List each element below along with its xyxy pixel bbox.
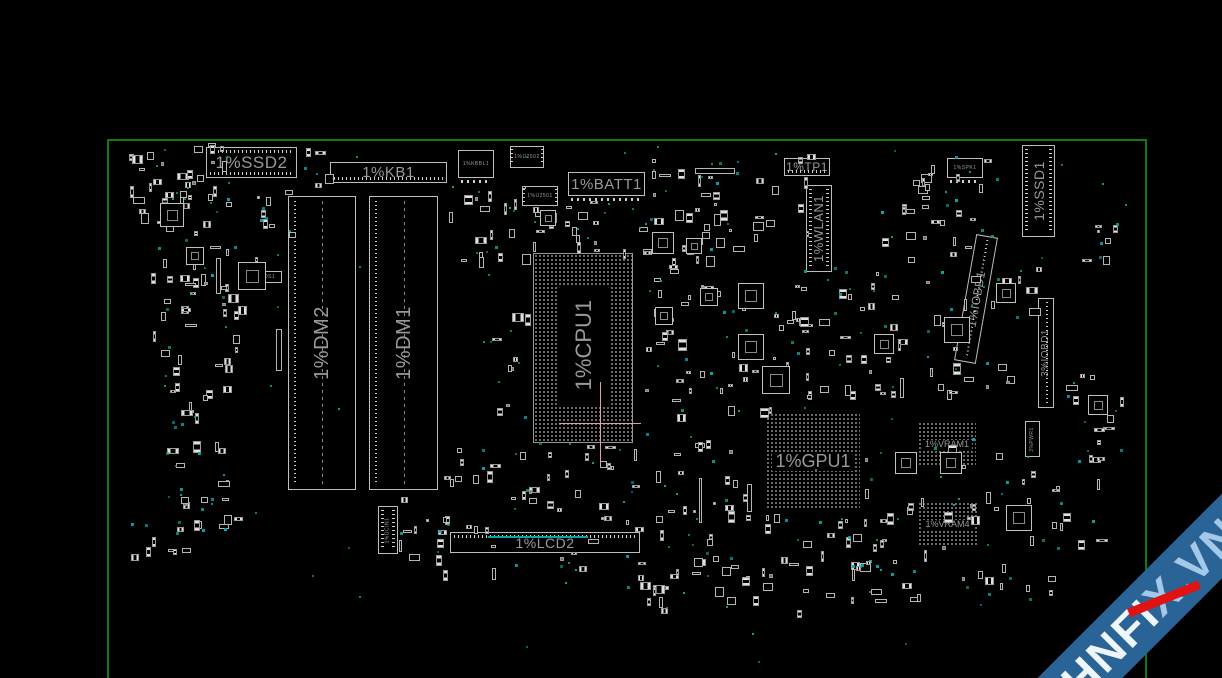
smd-part (1031, 471, 1036, 478)
component-label: 1%SPK1 (953, 166, 976, 171)
smd-part (520, 452, 526, 460)
via-dot (645, 223, 647, 225)
via-dot (204, 267, 206, 269)
via-dot (692, 544, 694, 546)
smd-part (871, 283, 875, 290)
ic-center-pad (658, 238, 668, 248)
via-dot (131, 523, 134, 526)
smd-part (1052, 522, 1057, 529)
via-dot (892, 386, 894, 388)
smd-part (257, 196, 260, 199)
via-dot (201, 508, 204, 511)
smd-part (773, 357, 776, 360)
smd-part (700, 371, 705, 378)
smd-part (829, 350, 835, 356)
via-dot (712, 460, 715, 463)
smd-part (906, 232, 916, 240)
smd-part (797, 610, 802, 618)
smd-part (161, 162, 164, 166)
smd-part (733, 246, 745, 252)
smd-part (147, 152, 154, 160)
via-dot (565, 582, 567, 584)
component-vram4[interactable]: 1%VRAM4 (918, 502, 977, 547)
via-dot (927, 330, 930, 333)
via-dot (657, 365, 659, 367)
via-dot (848, 536, 851, 539)
smd-part (713, 502, 716, 505)
smd-part (656, 342, 665, 345)
via-dot (701, 176, 703, 178)
smd-part (893, 560, 897, 564)
via-dot (668, 546, 670, 548)
smd-part (557, 508, 562, 512)
smd-part (676, 569, 679, 576)
via-dot (710, 372, 713, 375)
smd-part (774, 314, 779, 318)
smd-part (964, 299, 967, 311)
smd-part (1048, 576, 1056, 582)
ic-chip (1006, 505, 1032, 531)
via-dot (716, 387, 718, 389)
smd-part (401, 497, 408, 503)
smd-part (970, 218, 976, 221)
via-dot (168, 346, 171, 349)
smd-part (986, 385, 989, 389)
smd-part (662, 332, 668, 341)
pin-row (541, 149, 544, 165)
smd-part (746, 515, 751, 521)
smd-part (779, 325, 784, 331)
smd-part (868, 303, 875, 310)
smd-part (807, 395, 812, 399)
smd-part (1097, 230, 1100, 233)
smd-part (638, 562, 646, 565)
via-dot (518, 362, 520, 364)
smd-part (845, 519, 848, 523)
via-dot (165, 375, 167, 377)
via-dot (884, 325, 887, 328)
via-dot (619, 449, 621, 451)
smd-part (875, 384, 881, 391)
smd-part (802, 330, 809, 333)
smd-part (795, 285, 800, 288)
smd-part (201, 497, 208, 503)
pin-row (461, 180, 491, 183)
via-dot (1020, 270, 1022, 272)
ic-center-pad (1094, 401, 1103, 410)
via-dot (815, 469, 817, 471)
smd-part (220, 146, 224, 152)
smd-part (178, 355, 182, 365)
via-dot (560, 565, 563, 568)
smd-part (548, 452, 552, 458)
smd-part (1096, 539, 1108, 542)
smd-part (175, 383, 180, 392)
via-dot (483, 341, 485, 343)
smd-part (765, 524, 771, 534)
smd-part (605, 446, 616, 449)
via-dot (745, 329, 748, 332)
smd-part (225, 365, 233, 373)
smd-part (803, 541, 812, 548)
via-dot (478, 191, 480, 193)
smd-part (464, 195, 473, 205)
smd-part (533, 242, 536, 252)
smd-part (466, 525, 472, 529)
smd-part (487, 471, 493, 483)
smd-part (173, 367, 180, 376)
smd-part (161, 312, 166, 321)
via-dot (156, 165, 158, 167)
via-dot (710, 248, 713, 251)
smd-part (725, 505, 734, 511)
smd-part (638, 575, 644, 581)
component-u2501[interactable]: 1%U2501 (522, 186, 558, 206)
smd-part (443, 570, 448, 581)
via-dot (526, 156, 528, 158)
smd-part (880, 540, 884, 548)
via-dot (834, 312, 837, 315)
via-dot (210, 202, 212, 204)
via-dot (861, 564, 864, 567)
pin-row (555, 189, 558, 203)
smd-part (181, 497, 189, 504)
via-dot (758, 661, 760, 663)
smd-part (688, 295, 691, 300)
smd-part (1036, 267, 1042, 272)
smd-part (506, 404, 510, 407)
smd-part (235, 347, 238, 353)
via-dot (270, 385, 272, 387)
smd-part (522, 186, 526, 189)
via-dot (187, 187, 189, 189)
via-dot (723, 311, 726, 314)
via-dot (981, 229, 984, 232)
smd-part (725, 476, 730, 485)
via-dot (988, 593, 991, 596)
smd-part (729, 229, 732, 232)
via-dot (1116, 223, 1119, 226)
via-dot (234, 246, 237, 249)
smd-part (654, 218, 664, 225)
smd-part (1097, 440, 1101, 445)
component-batt1[interactable]: 1%BATT1 (568, 172, 645, 196)
component-tp1[interactable]: 1%TP1 (784, 158, 830, 176)
via-dot (696, 518, 698, 520)
smd-part (944, 512, 953, 523)
via-dot (539, 442, 542, 445)
smd-part (769, 407, 772, 414)
smd-part (1080, 374, 1085, 378)
via-dot (1006, 481, 1009, 484)
ic-chip (762, 366, 790, 394)
via-dot (498, 381, 500, 383)
via-dot (752, 633, 754, 635)
via-dot (639, 227, 641, 229)
smd-part (263, 219, 268, 229)
smd-part (632, 485, 640, 488)
smd-part (222, 303, 226, 306)
ic-center-pad (691, 243, 698, 250)
via-dot (819, 521, 822, 524)
smd-part (869, 370, 872, 374)
smd-part (864, 519, 867, 527)
smd-part (970, 504, 973, 508)
smd-part (436, 555, 442, 566)
smd-part (222, 498, 229, 501)
smd-part (474, 526, 478, 534)
smd-part (978, 571, 983, 579)
ic-chip (700, 288, 718, 306)
via-dot (681, 409, 684, 412)
smd-part (153, 331, 156, 342)
ic-chip (186, 247, 204, 265)
component-gpu1[interactable]: 1%GPU1 (766, 413, 860, 510)
smd-part (713, 556, 719, 562)
smd-part (176, 463, 185, 468)
via-dot (927, 356, 929, 358)
smd-part (696, 256, 699, 264)
smd-part (706, 256, 715, 267)
smd-part (593, 221, 599, 225)
pin-row (522, 189, 525, 203)
smd-part (1060, 523, 1063, 531)
via-dot (726, 606, 728, 608)
via-dot (894, 150, 896, 152)
smd-part (753, 222, 764, 231)
smd-part (819, 319, 830, 326)
smd-part (188, 195, 192, 200)
via-dot (996, 178, 999, 181)
via-dot (1001, 493, 1003, 495)
smd-part (728, 384, 733, 387)
via-dot (980, 604, 982, 606)
smd-part (223, 386, 232, 393)
smd-part (634, 449, 637, 461)
smd-part (578, 212, 588, 220)
via-dot (1041, 257, 1043, 259)
component-kb1[interactable]: 1%KB1 (330, 162, 447, 183)
ic-center-pad (951, 324, 963, 336)
smd-part (806, 373, 809, 381)
smd-part (399, 540, 402, 552)
via-dot (891, 573, 894, 576)
smd-part (210, 145, 215, 154)
via-dot (873, 290, 875, 292)
smd-part (806, 348, 810, 355)
smd-part (646, 347, 652, 352)
smd-part (994, 507, 999, 511)
via-dot (515, 453, 517, 455)
pin-row (1025, 149, 1028, 233)
smd-part (908, 257, 915, 263)
smd-part (306, 148, 311, 157)
smd-part (269, 224, 275, 228)
via-dot (225, 326, 227, 328)
ic-chip (686, 238, 702, 254)
via-dot (356, 156, 358, 158)
component-spk1[interactable]: 1%SPK1 (947, 158, 983, 178)
smd-part (866, 561, 871, 565)
pin-row (1049, 149, 1052, 233)
smd-part (1097, 457, 1105, 461)
smd-part (848, 294, 852, 300)
smd-part (971, 276, 981, 283)
smd-part (590, 201, 598, 204)
component-label: 1%DCIN1 (386, 517, 391, 543)
via-dot (180, 494, 182, 496)
via-dot (338, 408, 340, 410)
smd-part (508, 365, 512, 372)
via-dot (1016, 316, 1019, 319)
via-dot (736, 172, 739, 175)
via-dot (194, 416, 196, 418)
smd-part (192, 181, 196, 185)
via-dot (941, 271, 944, 274)
smd-part (511, 497, 516, 500)
smd-part (450, 479, 454, 487)
smd-part (1095, 225, 1102, 228)
via-dot (1099, 256, 1102, 259)
smd-part (1094, 428, 1105, 432)
smd-part (594, 241, 597, 245)
via-dot (1057, 547, 1060, 550)
smd-part (971, 516, 980, 525)
via-dot (1125, 204, 1127, 206)
component-dcin1[interactable]: 1%DCIN1 (378, 506, 398, 554)
smd-part (840, 336, 851, 339)
ic-center-pad (545, 215, 552, 222)
via-dot (913, 570, 916, 573)
via-dot (490, 341, 492, 343)
smd-part (675, 210, 684, 221)
smd-part (1090, 375, 1095, 380)
smd-part (659, 174, 671, 177)
smd-part (923, 236, 927, 240)
via-dot (791, 341, 794, 344)
smd-part (226, 249, 229, 256)
smd-part (653, 193, 656, 197)
smd-part (720, 210, 728, 221)
via-dot (966, 586, 969, 589)
pin-row (1046, 302, 1048, 404)
ic-chip (160, 203, 184, 227)
smd-part (576, 235, 580, 243)
smd-part (600, 461, 607, 468)
via-dot (255, 512, 257, 514)
smd-part (985, 577, 994, 585)
smd-part (991, 301, 995, 309)
via-dot (1042, 539, 1045, 542)
pin-row (210, 172, 293, 175)
smd-part (498, 253, 503, 262)
smd-part (194, 520, 200, 531)
component-label: 1%SSD1 (1032, 161, 1046, 221)
smd-part (902, 207, 906, 215)
smd-part (599, 503, 609, 510)
component-dm1[interactable]: 1%DM1 (369, 196, 438, 490)
via-dot (852, 565, 855, 568)
via-dot (608, 203, 610, 205)
smd-part (587, 445, 595, 449)
via-dot (1084, 421, 1086, 423)
via-dot (649, 290, 651, 292)
smd-part (806, 566, 813, 576)
smd-part (930, 368, 933, 377)
component-cpu1[interactable]: 1%CPU1 (533, 253, 633, 443)
smd-part (1049, 590, 1053, 596)
smd-part (579, 566, 587, 572)
ic-center-pad (946, 458, 956, 468)
smd-part (678, 339, 687, 351)
smd-part (953, 237, 956, 246)
via-dot (524, 416, 527, 419)
via-dot (860, 332, 862, 334)
component-label: 1%GPU1 (772, 452, 853, 472)
via-dot (175, 465, 177, 467)
smd-part (315, 151, 326, 155)
smd-part (1113, 225, 1118, 233)
smd-part (798, 157, 803, 164)
via-dot (211, 498, 214, 501)
smd-part (1022, 479, 1025, 485)
smd-part (956, 174, 960, 182)
smd-part (1063, 513, 1071, 522)
smd-part (714, 203, 717, 206)
smd-part (693, 510, 696, 513)
ic-chip (895, 452, 917, 474)
via-dot (950, 308, 953, 311)
smd-part (594, 249, 600, 252)
smd-part (678, 471, 684, 475)
smd-part (182, 548, 191, 553)
smd-part (921, 498, 924, 507)
smd-part (146, 547, 151, 557)
via-dot (145, 524, 148, 527)
via-dot (732, 310, 735, 313)
ic-chip (944, 317, 970, 343)
smd-part (223, 309, 227, 317)
component-label: 1%KBBL1 (463, 162, 489, 167)
via-dot (587, 237, 589, 239)
via-dot (797, 352, 800, 355)
ic-center-pad (745, 290, 757, 302)
smd-part (133, 197, 145, 204)
smd-part (926, 281, 930, 284)
smd-part (753, 596, 759, 606)
highlighted-trace (488, 536, 588, 538)
bga-center: 1%CPU1 (558, 285, 610, 405)
smd-part (238, 306, 247, 315)
smd-part (640, 582, 651, 590)
smd-part (707, 539, 713, 546)
smd-part (871, 589, 882, 595)
component-ssd1[interactable]: 1%SSD1 (1022, 145, 1055, 237)
via-dot (534, 221, 536, 223)
boardview-canvas[interactable]: 1%SSD21%KB11%KBBL11%U25021%U25011%BATT11… (0, 0, 1222, 678)
via-dot (488, 274, 490, 276)
component-wlan1[interactable]: 1%WLAN1 (806, 185, 832, 272)
component-kbbl1[interactable]: 1%KBBL1 (458, 150, 494, 178)
pin-row (809, 189, 812, 268)
component-pwr1[interactable]: 3%PWR1 (1025, 421, 1040, 457)
smd-part (701, 193, 711, 197)
component-dm2[interactable]: 1%DM2 (288, 196, 356, 490)
via-dot (1102, 183, 1104, 185)
via-dot (166, 308, 169, 311)
smd-part (490, 464, 501, 468)
smd-part (984, 159, 992, 163)
